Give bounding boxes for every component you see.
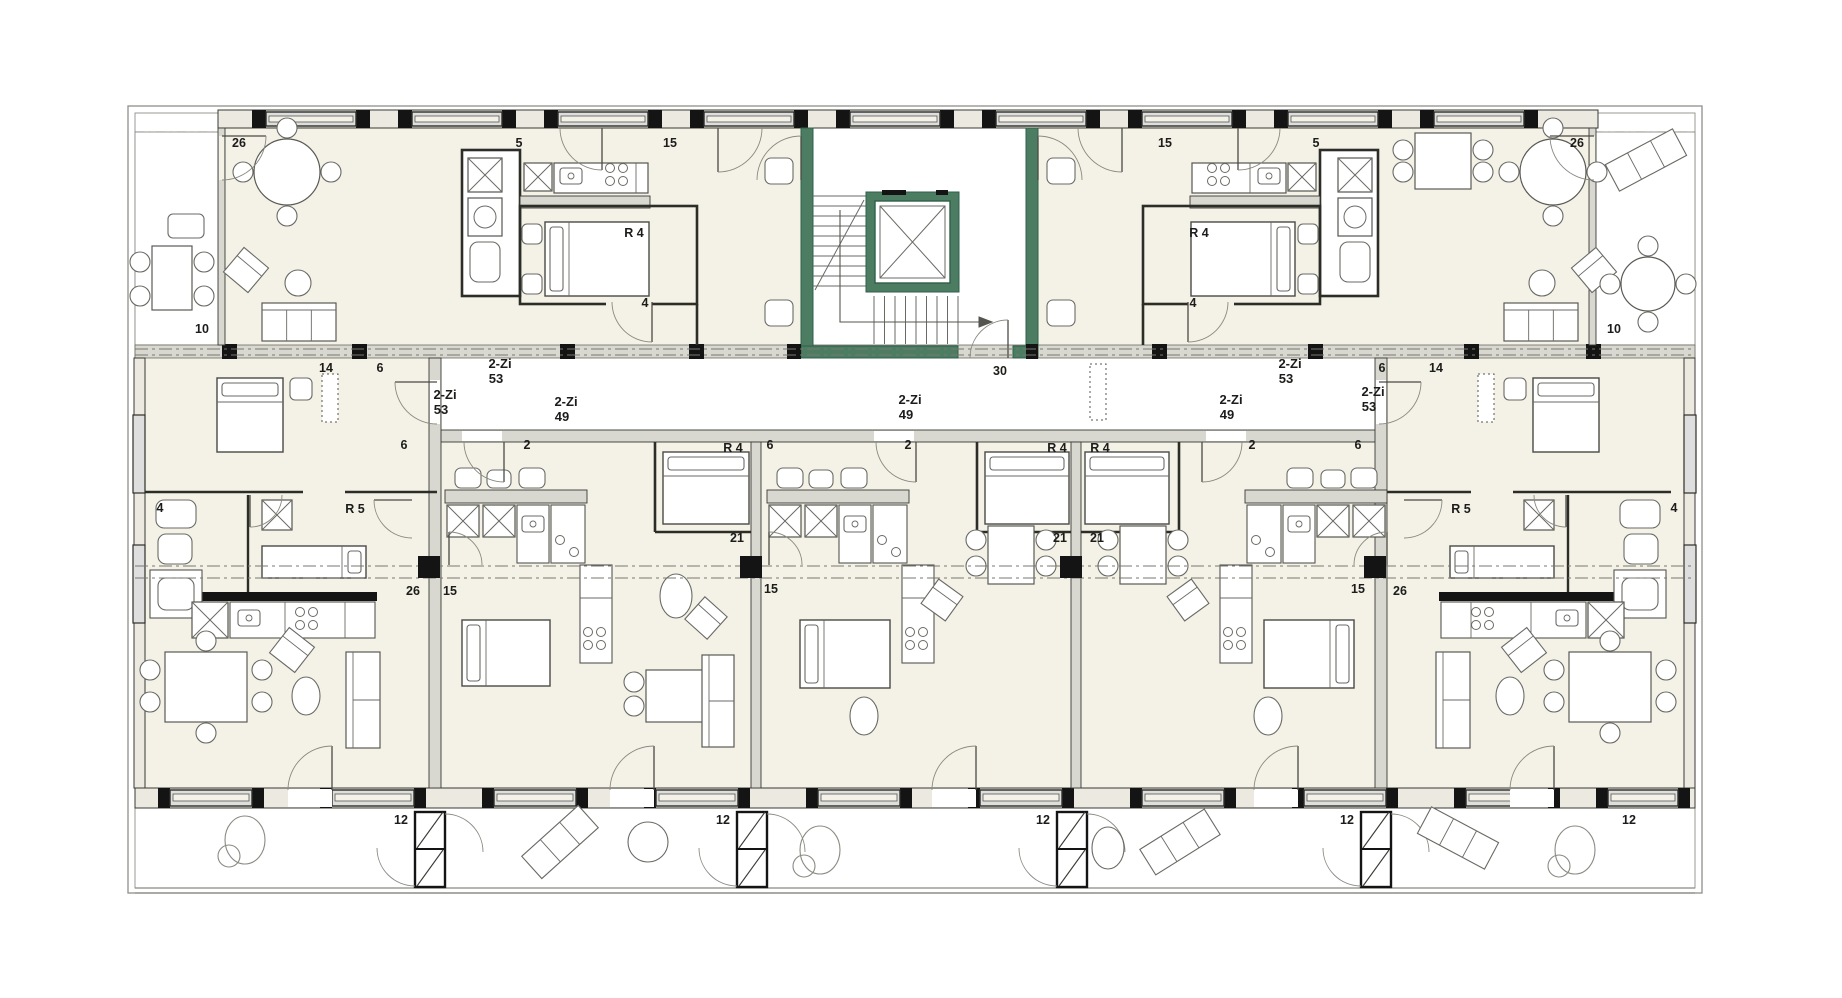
room-label: R 4 — [1090, 441, 1110, 455]
dimension-label: 6 — [1379, 361, 1386, 375]
unit-area-label: 53 — [1279, 371, 1293, 386]
dimension-label: 14 — [1429, 361, 1443, 375]
unit-area-label: 53 — [434, 402, 448, 417]
dimension-label: 15 — [663, 136, 677, 150]
dimension-label: 15 — [1158, 136, 1172, 150]
unit-area-label: 49 — [555, 409, 569, 424]
unit-type-label: 2-Zi — [488, 356, 511, 371]
unit-area-label: 53 — [1362, 399, 1376, 414]
balcony — [135, 805, 1695, 893]
dimension-label: 4 — [1671, 501, 1678, 515]
dimension-label: 12 — [1622, 813, 1636, 827]
dimension-label: 6 — [1355, 438, 1362, 452]
room-label: R 4 — [624, 226, 644, 240]
dimension-label: 12 — [716, 813, 730, 827]
dimension-label: 26 — [1570, 136, 1584, 150]
dimension-label: 12 — [394, 813, 408, 827]
room-label: R 4 — [1047, 441, 1067, 455]
dimension-label: 6 — [767, 438, 774, 452]
dimension-label: 21 — [1090, 531, 1104, 545]
dimension-label: 15 — [443, 584, 457, 598]
dimension-label: 2 — [905, 438, 912, 452]
unit-area-label: 49 — [1220, 407, 1234, 422]
dimension-label: 5 — [1313, 136, 1320, 150]
unit-type-label: 2-Zi — [1361, 384, 1384, 399]
unit-type-label: 2-Zi — [433, 387, 456, 402]
dimension-label: 21 — [1053, 531, 1067, 545]
dimension-label: 10 — [195, 322, 209, 336]
dimension-label: 12 — [1036, 813, 1050, 827]
dimension-label: 15 — [764, 582, 778, 596]
dimension-label: 26 — [1393, 584, 1407, 598]
dimension-label: 4 — [157, 501, 164, 515]
room-label: R 4 — [1189, 226, 1209, 240]
dimension-label: 4 — [1190, 296, 1197, 310]
unit-type-label: 2-Zi — [554, 394, 577, 409]
floor-plan-page: 2651515526441010146614306262264421212126… — [0, 0, 1842, 998]
unit-type-label: 2-Zi — [898, 392, 921, 407]
dimension-label: 2 — [1249, 438, 1256, 452]
dimension-label: 26 — [406, 584, 420, 598]
floor-plan-drawing: 2651515526441010146614306262264421212126… — [0, 0, 1842, 998]
dimension-label: 5 — [516, 136, 523, 150]
room-label: R 5 — [345, 502, 365, 516]
unit-area-label: 53 — [489, 371, 503, 386]
dimension-label: 2 — [524, 438, 531, 452]
room-label: R 4 — [723, 441, 743, 455]
dimension-label: 14 — [319, 361, 333, 375]
unit-type-label: 2-Zi — [1219, 392, 1242, 407]
dimension-label: 26 — [232, 136, 246, 150]
unit-type-label: 2-Zi — [1278, 356, 1301, 371]
unit-area-label: 49 — [899, 407, 913, 422]
dimension-label: 21 — [730, 531, 744, 545]
dimension-label: 12 — [1340, 813, 1354, 827]
room-label: R 5 — [1451, 502, 1471, 516]
dimension-label: 6 — [377, 361, 384, 375]
dimension-label: 30 — [993, 364, 1007, 378]
dimension-label: 15 — [1351, 582, 1365, 596]
dimension-label: 6 — [401, 438, 408, 452]
dimension-label: 4 — [642, 296, 649, 310]
dimension-label: 10 — [1607, 322, 1621, 336]
